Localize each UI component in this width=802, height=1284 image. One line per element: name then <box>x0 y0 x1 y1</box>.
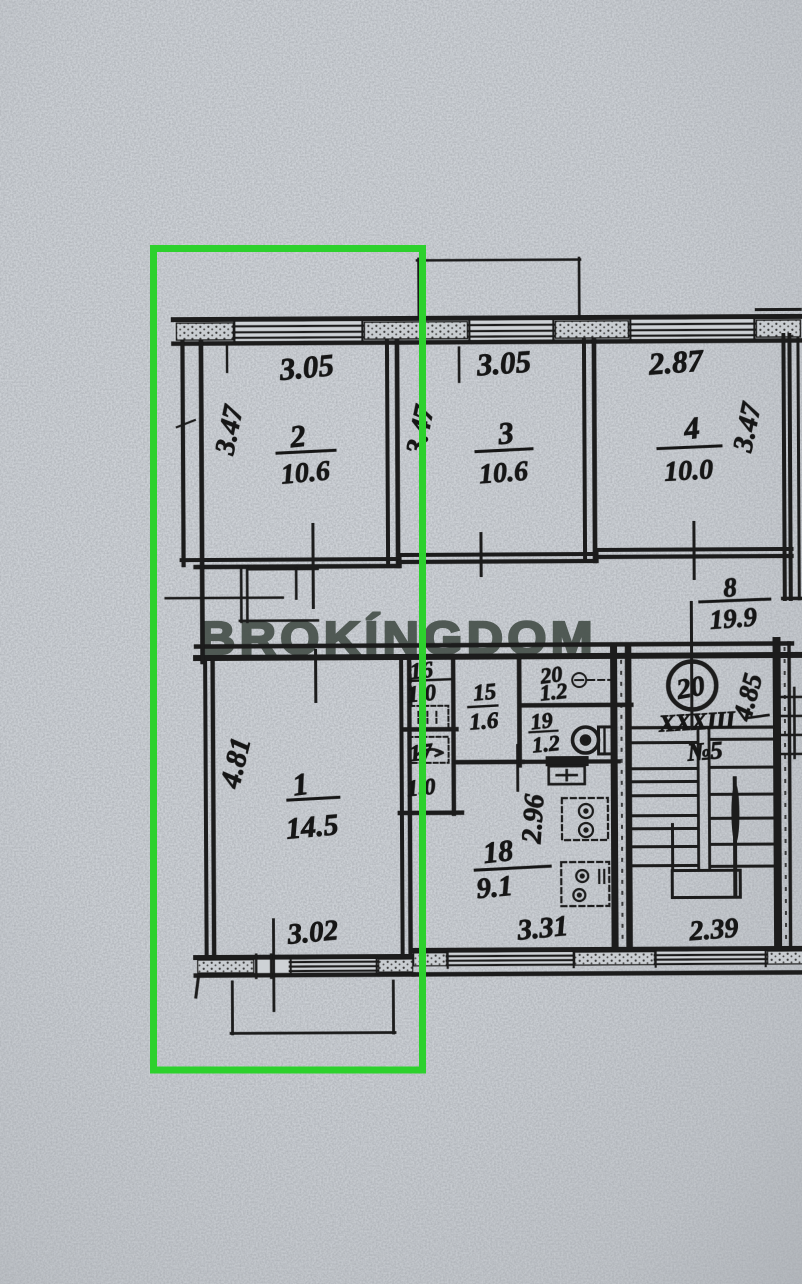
svg-text:3.05: 3.05 <box>277 347 335 387</box>
svg-text:18: 18 <box>481 834 514 870</box>
svg-text:10.6: 10.6 <box>478 456 529 491</box>
svg-text:10.0: 10.0 <box>663 454 714 488</box>
svg-text:2.39: 2.39 <box>687 913 739 948</box>
svg-text:1.6: 1.6 <box>469 707 500 734</box>
svg-text:10.6: 10.6 <box>280 455 332 490</box>
svg-text:3.02: 3.02 <box>285 914 339 951</box>
svg-text:14.5: 14.5 <box>284 808 339 846</box>
svg-text:2.96: 2.96 <box>516 793 550 845</box>
svg-text:1.2: 1.2 <box>531 730 561 757</box>
svg-text:19.9: 19.9 <box>709 602 759 635</box>
svg-text:XXXIII: XXXIII <box>657 707 737 737</box>
svg-text:9.1: 9.1 <box>475 870 514 905</box>
svg-text:1.2: 1.2 <box>538 678 568 706</box>
svg-text:20: 20 <box>673 670 707 706</box>
svg-text:3.31: 3.31 <box>515 910 569 947</box>
svg-text:2.87: 2.87 <box>646 342 705 381</box>
svg-text:15: 15 <box>472 679 497 706</box>
svg-text:3.05: 3.05 <box>474 343 532 382</box>
svg-text:№5: №5 <box>685 737 723 767</box>
